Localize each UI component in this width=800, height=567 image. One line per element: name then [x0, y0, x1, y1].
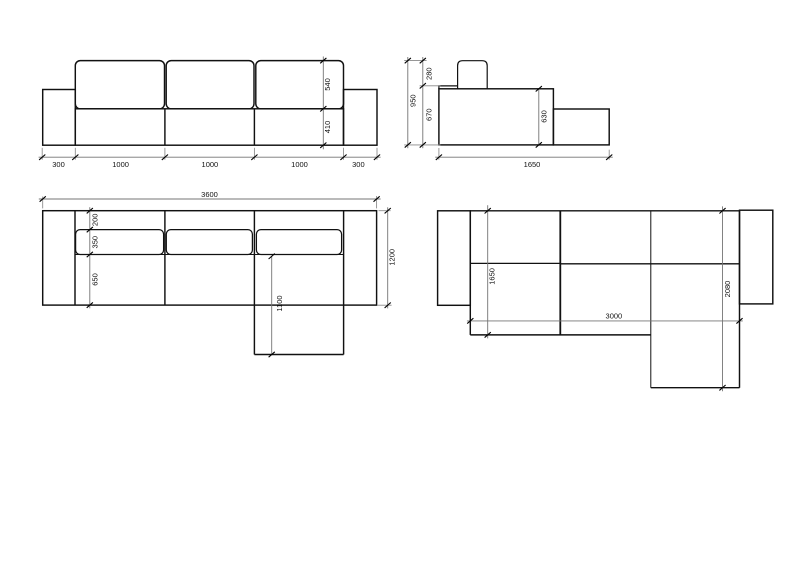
svg-text:1000: 1000: [202, 160, 219, 169]
svg-text:3000: 3000: [606, 312, 623, 321]
svg-text:300: 300: [52, 160, 65, 169]
svg-text:280: 280: [424, 67, 433, 80]
svg-text:350: 350: [90, 236, 99, 249]
svg-text:300: 300: [352, 160, 365, 169]
svg-text:1000: 1000: [291, 160, 308, 169]
svg-text:650: 650: [90, 273, 99, 286]
svg-text:410: 410: [323, 121, 332, 134]
svg-text:950: 950: [409, 94, 418, 107]
svg-text:540: 540: [323, 78, 332, 91]
svg-text:630: 630: [540, 110, 549, 123]
svg-text:1100: 1100: [275, 295, 284, 311]
svg-text:670: 670: [424, 108, 433, 121]
svg-text:200: 200: [91, 214, 100, 227]
svg-text:2080: 2080: [723, 281, 732, 298]
svg-text:3600: 3600: [201, 190, 218, 199]
svg-text:1650: 1650: [524, 160, 541, 169]
svg-text:1000: 1000: [112, 160, 129, 169]
svg-text:1650: 1650: [487, 268, 496, 285]
svg-text:1200: 1200: [388, 249, 397, 266]
